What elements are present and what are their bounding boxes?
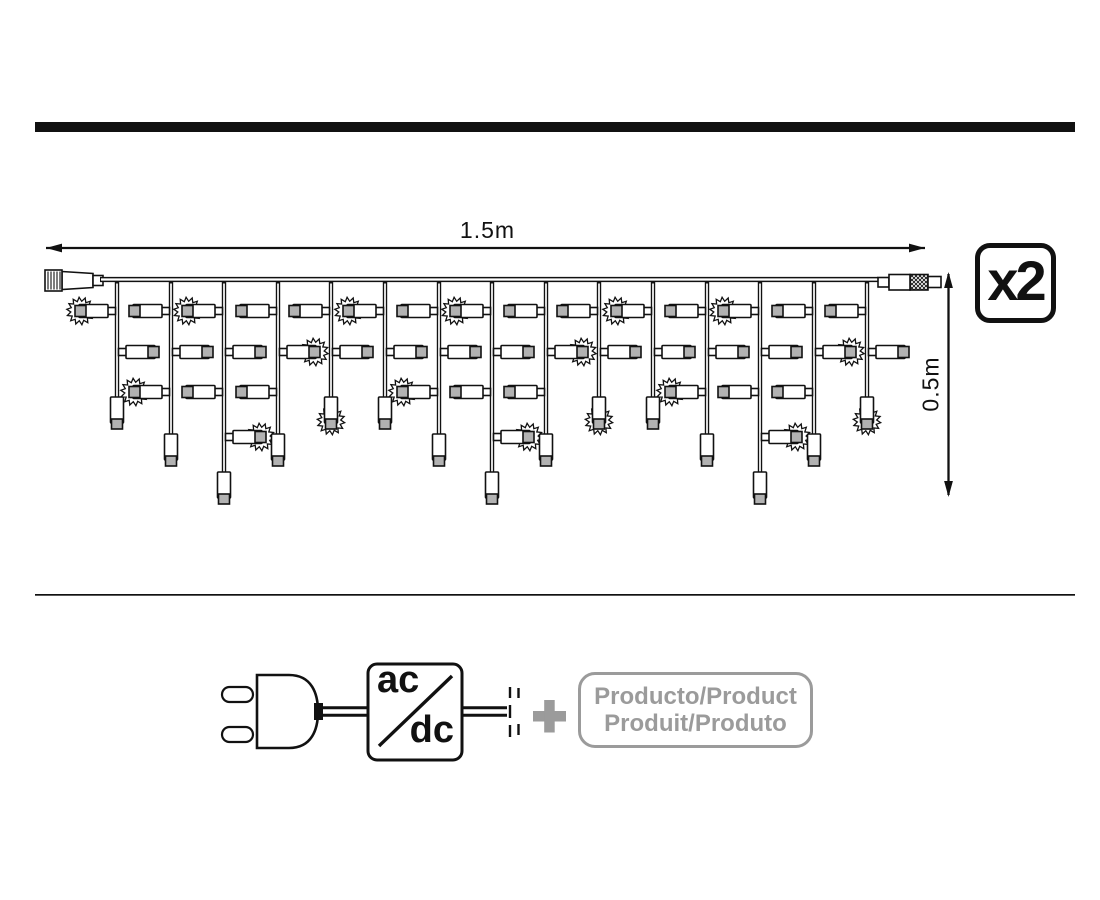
plus-icon [533,700,566,733]
diagram-canvas [0,0,1100,900]
product-label-line2: Produit/Produto [604,710,787,737]
quantity-badge: x2 [975,243,1056,323]
dc-label: dc [368,710,454,750]
product-label-line1: Producto/Product [594,683,797,710]
icicle-light-string [62,272,928,451]
height-dimension-label: 0.5m [918,356,945,411]
ac-label: ac [377,660,419,700]
product-diagram-page: 1.5m 0.5m x2 ac dc Producto/Product Prod… [0,0,1100,900]
male-connector-icon [910,275,928,291]
power-plug-icon [222,675,323,748]
section-divider [35,594,1075,596]
product-label-box: Producto/Product Produit/Produto [578,672,813,748]
female-connector-icon [62,272,93,290]
length-dimension-label: 1.5m [430,217,545,244]
top-rule-bar [35,122,1075,132]
